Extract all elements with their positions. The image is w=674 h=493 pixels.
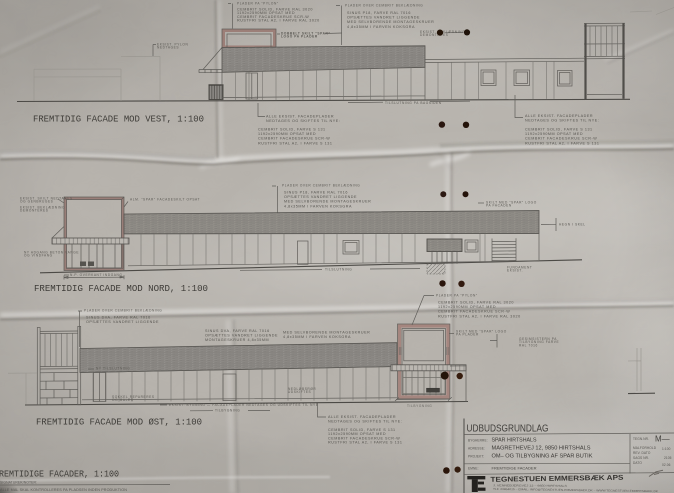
svg-text:SINUS P18, FARVE RAL 7016: SINUS P18, FARVE RAL 7016 — [284, 191, 348, 195]
svg-text:PLADER OVER CEMBRIT BEKLÆDNING: PLADER OVER CEMBRIT BEKLÆDNING — [345, 4, 423, 8]
svg-text:CEMBRIT SOLID, FARVE RAL 3020: CEMBRIT SOLID, FARVE RAL 3020 — [438, 301, 514, 305]
svg-text:MONTAGESKRUER 4,8x35MM: MONTAGESKRUER 4,8x35MM — [205, 338, 269, 342]
svg-text:LOGO PA PLADER: LOGO PA PLADER — [281, 35, 318, 39]
svg-text:ALLE EKSIST. FACADEPLADER: ALLE EKSIST. FACADEPLADER — [328, 415, 396, 419]
svg-text:PLADER OVER CEMBRIT BEKLÆDNING: PLADER OVER CEMBRIT BEKLÆDNING — [84, 309, 162, 313]
svg-text:SINUS P18, FARVE RAL 7016: SINUS P18, FARVE RAL 7016 — [347, 11, 411, 15]
svg-text:FREMTIDIG FACADE MOD ØST, 1:10: FREMTIDIG FACADE MOD ØST, 1:100 — [36, 417, 202, 428]
svg-text:CEMBRIT SOLID, FARVE S 131: CEMBRIT SOLID, FARVE S 131 — [525, 128, 593, 132]
svg-text:RUSTFRI STAL A2, I FARVE RAL 3: RUSTFRI STAL A2, I FARVE RAL 3020 — [438, 314, 521, 318]
svg-text:RUSTFRI STAL A2, I FARVE S 131: RUSTFRI STAL A2, I FARVE S 131 — [525, 141, 599, 145]
svg-text:BYGHERRE:: BYGHERRE: — [468, 439, 488, 443]
svg-text:OG GENBRUGES: OG GENBRUGES — [20, 200, 53, 204]
svg-text:ALLE EKSIST. FACADEPLADER: ALLE EKSIST. FACADEPLADER — [525, 114, 593, 118]
svg-text:DEMONTERES: DEMONTERES — [420, 33, 449, 37]
svg-text:NEDTAGES OG SKIFTES TIL NYE:: NEDTAGES OG SKIFTES TIL NYE: — [328, 420, 402, 424]
svg-text:SAGS NR.: SAGS NR. — [633, 456, 649, 460]
svg-text:2105: 2105 — [664, 456, 672, 460]
svg-text:1192x2590MM OPSAT MED: 1192x2590MM OPSAT MED — [258, 132, 316, 136]
svg-text:RUSTFRI STAL A2, I FARVE RAL 3: RUSTFRI STAL A2, I FARVE RAL 3020 — [237, 19, 320, 23]
svg-text:MED SELVBORENDE MONTAGESKRUER: MED SELVBORENDE MONTAGESKRUER — [283, 331, 370, 335]
svg-text:FREMTIDIG FACADE MOD VEST, 1:1: FREMTIDIG FACADE MOD VEST, 1:100 — [33, 114, 204, 125]
svg-text:TILBYGNING: TILBYGNING — [407, 404, 432, 408]
svg-text:TILBYGNING: TILBYGNING — [215, 409, 240, 413]
svg-text:SINUS DVA, FARVE RAL 7016: SINUS DVA, FARVE RAL 7016 — [86, 316, 151, 320]
svg-text:EMNE:: EMNE: — [468, 467, 479, 471]
svg-text:MED SELVBORENDE MONTAGESKRUER: MED SELVBORENDE MONTAGESKRUER — [284, 200, 371, 204]
svg-text:OG VINDFANG: OG VINDFANG — [24, 254, 53, 258]
svg-text:NEDTAGES OG SKIFTES TIL NYE:: NEDTAGES OG SKIFTES TIL NYE: — [525, 119, 599, 123]
svg-text:NEDTAGES OG SKIFTES TIL NYE:: NEDTAGES OG SKIFTES TIL NYE: — [266, 119, 340, 123]
svg-text:M—: M— — [655, 435, 670, 444]
svg-text:RUSTFRI STAL A2, I FARVE S 131: RUSTFRI STAL A2, I FARVE S 131 — [328, 441, 402, 445]
svg-text:OPSÆTTES VANDRET LIGGENDE: OPSÆTTES VANDRET LIGGENDE — [205, 334, 278, 338]
svg-text:ALM. "SPAR" FACADESKILT OPSAT: ALM. "SPAR" FACADESKILT OPSAT — [130, 198, 200, 202]
svg-text:RAL 7016: RAL 7016 — [519, 343, 538, 347]
svg-text:1192x2590MM OPSAT MED: 1192x2590MM OPSAT MED — [525, 132, 583, 136]
svg-text:UDSKIFTES: UDSKIFTES — [288, 390, 311, 394]
svg-text:FREMTIDIG FACADE MOD NORD, 1:1: FREMTIDIG FACADE MOD NORD, 1:100 — [34, 283, 208, 294]
svg-text:MALFORHOLD: MALFORHOLD — [633, 446, 657, 450]
svg-text:CEMBRIT FACADESKRUE SCR-W: CEMBRIT FACADESKRUE SCR-W — [438, 310, 510, 314]
svg-text:TEGN.NR.: TEGN.NR. — [633, 437, 649, 441]
svg-text:REV. DATO: REV. DATO — [633, 451, 651, 455]
svg-text:1192x2590MM OPSAT MED: 1192x2590MM OPSAT MED — [438, 305, 496, 309]
svg-text:EKSIST.: EKSIST. — [507, 269, 523, 273]
svg-text:TILSLUTNING: TILSLUTNING — [325, 268, 352, 272]
svg-text:ALLE EKSIST. FACADEPLADER: ALLE EKSIST. FACADEPLADER — [266, 115, 334, 119]
svg-text:CEMBRIT FACADESKRUE SCR-W: CEMBRIT FACADESKRUE SCR-W — [525, 137, 597, 141]
svg-text:4,8x35MM I FARVEN KOKSGRA: 4,8x35MM I FARVEN KOKSGRA — [283, 335, 351, 339]
svg-text:PLADER PA "PYLON": PLADER PA "PYLON" — [436, 294, 478, 298]
svg-text:PROJEKT:: PROJEKT: — [468, 455, 484, 459]
svg-text:ALLE MAL SKAL KONTROLLERES PA: ALLE MAL SKAL KONTROLLERES PA PLADSEN IN… — [0, 488, 128, 492]
svg-text:FREMTIDIGE FACADER, 1:100: FREMTIDIGE FACADER, 1:100 — [0, 469, 119, 480]
svg-text:DATO: DATO — [633, 461, 642, 465]
svg-text:CEMBRIT SOLID, FARVE S 131: CEMBRIT SOLID, FARVE S 131 — [258, 128, 326, 132]
svg-text:DEMONTERES: DEMONTERES — [20, 209, 49, 213]
svg-text:NY TILSLUTNING: NY TILSLUTNING — [96, 367, 130, 371]
svg-text:SPAR HIRTSHALS: SPAR HIRTSHALS — [492, 438, 537, 444]
svg-text:HEGN I SKEL: HEGN I SKEL — [559, 223, 586, 227]
svg-text:SINUS DVA, FARVE RAL 7016: SINUS DVA, FARVE RAL 7016 — [205, 329, 270, 333]
svg-text:PA FACADEN: PA FACADEN — [486, 204, 512, 208]
svg-text:FREMTIDIGE FACADER: FREMTIDIGE FACADER — [492, 467, 537, 471]
svg-text:N.P. OVERKANT INDGANG: N.P. OVERKANT INDGANG — [70, 273, 123, 277]
svg-text:OG MALES: OG MALES — [112, 398, 133, 402]
svg-text:TILSLUTNING PA BAGSIDEN: TILSLUTNING PA BAGSIDEN — [385, 101, 442, 105]
svg-text:MED SELVBORENDE MONTAGESKRUER: MED SELVBORENDE MONTAGESKRUER — [347, 20, 434, 24]
svg-text:MAGRETHEVEJ 12, 9850 HIRTSHALS: MAGRETHEVEJ 12, 9850 HIRTSHALS — [492, 446, 591, 452]
svg-text:4,8x35MM I FARVEN KOKSGRA: 4,8x35MM I FARVEN KOKSGRA — [347, 25, 415, 29]
svg-text:ADRESSE:: ADRESSE: — [468, 447, 485, 451]
svg-text:OM– OG TILBYGNING AF SPAR BUTI: OM– OG TILBYGNING AF SPAR BUTIK — [492, 454, 593, 460]
svg-text:EKSIST. BYGNING — FACADEPLADER: EKSIST. BYGNING — FACADEPLADER NEDTAGES … — [169, 403, 318, 407]
svg-text:OPSÆTTES VANDRET LIGGENDE: OPSÆTTES VANDRET LIGGENDE — [347, 16, 420, 20]
svg-text:CEMBRIT FACADESKRUE SCR-W: CEMBRIT FACADESKRUE SCR-W — [258, 137, 330, 141]
svg-text:PA PLADER: PA PLADER — [456, 333, 479, 337]
svg-text:SIGNATURER/NOTER:: SIGNATURER/NOTER: — [0, 481, 37, 485]
svg-text:OPSÆTTES VANDRET LIGGENDE: OPSÆTTES VANDRET LIGGENDE — [284, 195, 357, 199]
svg-text:RUSTFRI STAL A2, I FARVE S 131: RUSTFRI STAL A2, I FARVE S 131 — [258, 141, 332, 145]
svg-text:02.06: 02.06 — [662, 463, 671, 467]
svg-text:UDBUDSGRUNDLAG: UDBUDSGRUNDLAG — [467, 424, 549, 435]
svg-text:1:100: 1:100 — [662, 447, 671, 451]
svg-text:PLADER OVER CEMBRIT BEKLÆDNING: PLADER OVER CEMBRIT BEKLÆDNING — [282, 184, 360, 188]
svg-text:PLADER PA "PYLON": PLADER PA "PYLON" — [237, 2, 279, 6]
svg-text:OPSÆTTES VANDRET LIGGENDE: OPSÆTTES VANDRET LIGGENDE — [86, 320, 159, 324]
svg-text:4,8x35MM I FARVEN KOKSGRA: 4,8x35MM I FARVEN KOKSGRA — [284, 204, 352, 208]
svg-text:NEDTAGES: NEDTAGES — [157, 46, 179, 50]
